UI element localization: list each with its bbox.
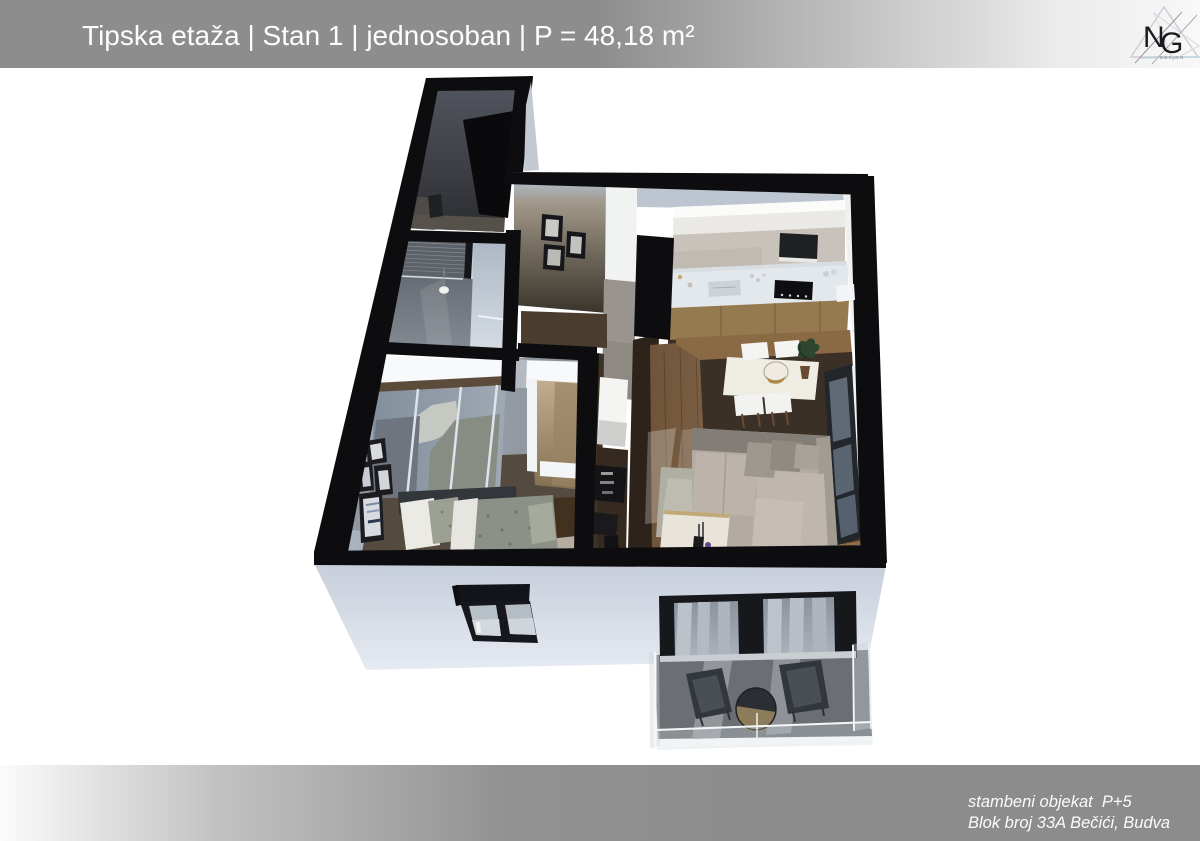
svg-text:Blok broj 33A Bečići, Budva: Blok broj 33A Bečići, Budva (968, 814, 1170, 832)
svg-text:DESIGN: DESIGN (1160, 55, 1184, 60)
svg-text:stambeni objekat P+5: stambeni objekat P+5 (968, 793, 1133, 811)
svg-text:Tipska etaža | Stan 1 | jednos: Tipska etaža | Stan 1 | jednosoban | P =… (82, 20, 695, 51)
